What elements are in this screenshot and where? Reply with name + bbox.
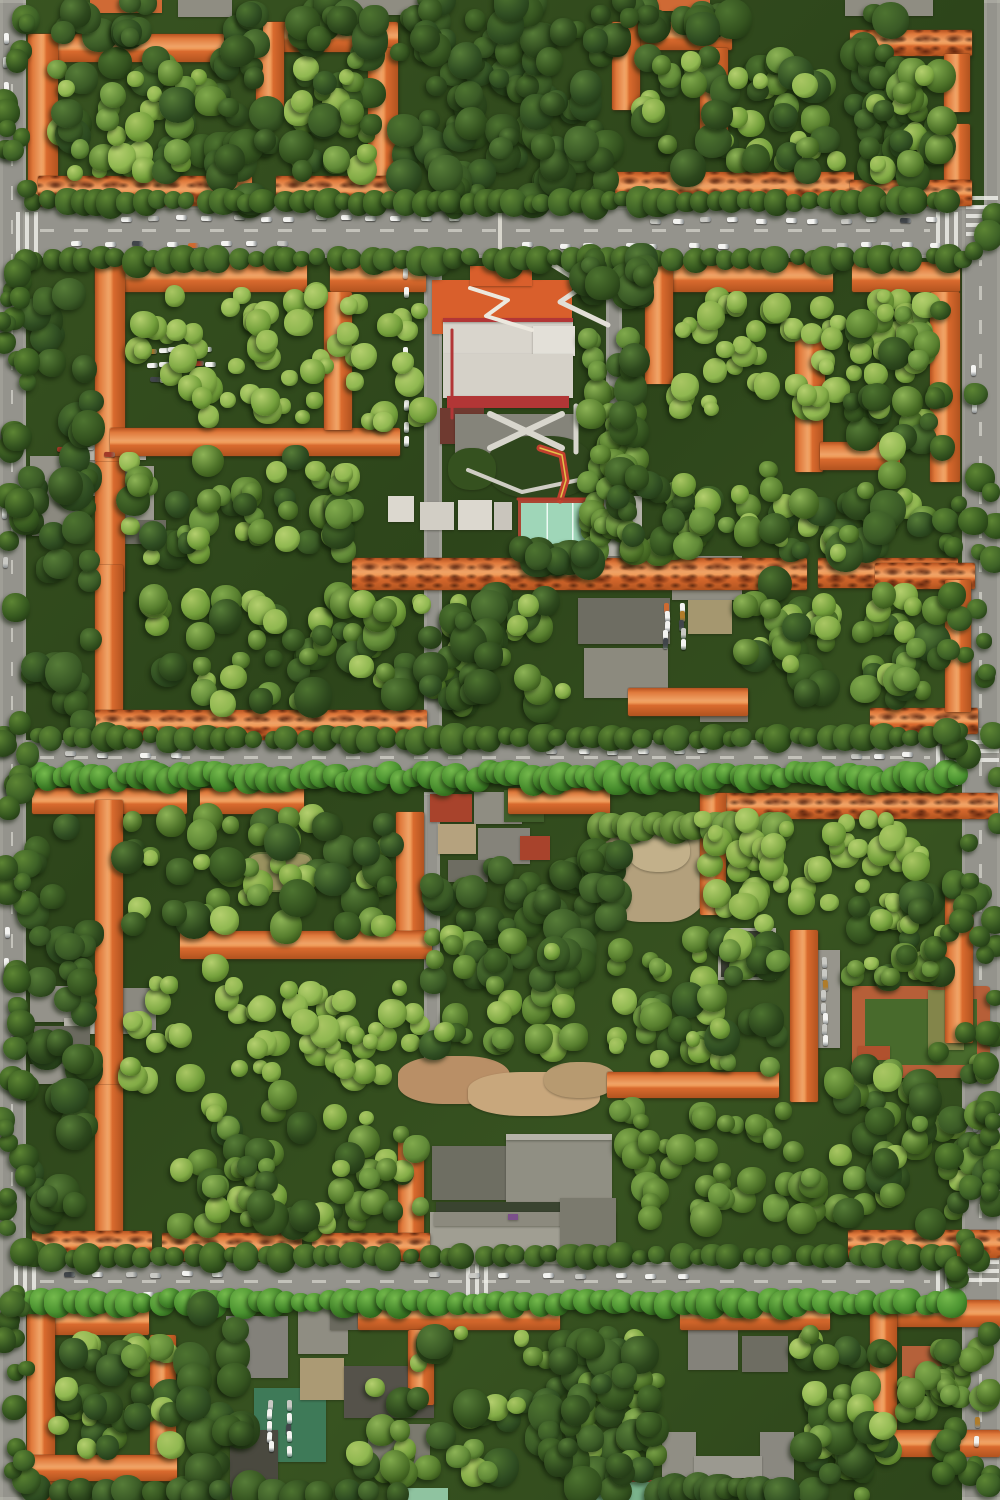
tree bbox=[264, 823, 300, 861]
tree bbox=[464, 669, 501, 704]
car bbox=[261, 217, 272, 222]
car bbox=[974, 1435, 979, 1446]
tree bbox=[872, 2, 909, 39]
tree bbox=[976, 633, 992, 649]
building-or-ground-patch bbox=[458, 500, 492, 530]
tree bbox=[125, 112, 154, 142]
tree bbox=[978, 1322, 1000, 1346]
tree bbox=[37, 1185, 58, 1207]
tree bbox=[231, 1060, 248, 1077]
tree bbox=[819, 1463, 841, 1484]
tree bbox=[612, 988, 637, 1015]
tree bbox=[274, 726, 298, 750]
tree bbox=[760, 477, 783, 502]
tree bbox=[638, 1206, 662, 1230]
tree bbox=[698, 46, 720, 68]
tree bbox=[3, 965, 31, 993]
tree bbox=[339, 69, 354, 85]
tree bbox=[961, 873, 979, 889]
tree bbox=[908, 350, 929, 370]
tree bbox=[729, 893, 759, 920]
tree bbox=[821, 327, 843, 350]
tree bbox=[936, 1429, 961, 1452]
tree bbox=[789, 488, 819, 519]
tree bbox=[847, 960, 865, 977]
street-road bbox=[984, 0, 1000, 208]
car bbox=[718, 244, 729, 249]
tree bbox=[312, 813, 343, 841]
tree bbox=[640, 1002, 672, 1031]
car bbox=[575, 1274, 586, 1279]
tree bbox=[873, 100, 894, 121]
tree bbox=[689, 507, 715, 534]
tree bbox=[824, 1067, 854, 1099]
tree bbox=[249, 189, 276, 213]
tree bbox=[915, 1208, 946, 1240]
tree bbox=[650, 1050, 669, 1068]
tree bbox=[80, 628, 102, 651]
tree bbox=[0, 1291, 25, 1317]
tree bbox=[453, 955, 476, 979]
tree bbox=[550, 18, 577, 46]
tree bbox=[420, 873, 444, 898]
tree bbox=[299, 648, 318, 665]
tree bbox=[591, 5, 611, 24]
tree bbox=[192, 387, 212, 409]
tree bbox=[158, 60, 183, 86]
tree bbox=[346, 1441, 373, 1466]
tree bbox=[210, 690, 236, 717]
tree bbox=[897, 150, 924, 177]
tree bbox=[487, 1001, 512, 1024]
tree bbox=[658, 135, 677, 154]
tree bbox=[165, 285, 185, 307]
tree bbox=[426, 1422, 456, 1449]
tree bbox=[14, 348, 40, 376]
car bbox=[97, 753, 108, 758]
tree bbox=[266, 461, 287, 483]
tree bbox=[478, 1461, 498, 1483]
tree bbox=[363, 1034, 378, 1049]
car bbox=[365, 216, 376, 221]
building-or-ground-patch bbox=[447, 396, 569, 408]
tree bbox=[955, 1022, 976, 1043]
car bbox=[786, 218, 797, 223]
tree bbox=[947, 606, 972, 631]
tree bbox=[412, 1197, 429, 1216]
tree bbox=[456, 875, 487, 908]
tree bbox=[222, 1317, 249, 1343]
tree bbox=[928, 1042, 949, 1062]
tree bbox=[245, 731, 262, 748]
tree bbox=[71, 139, 89, 159]
tree bbox=[775, 1102, 792, 1120]
tree bbox=[583, 28, 608, 53]
tree bbox=[187, 527, 210, 550]
tree bbox=[576, 399, 606, 429]
tree bbox=[63, 1192, 87, 1217]
tree bbox=[305, 1481, 333, 1500]
tree bbox=[597, 875, 625, 902]
tree bbox=[465, 9, 486, 31]
tree bbox=[637, 1385, 662, 1411]
building-or-ground-patch bbox=[430, 794, 472, 822]
tree bbox=[56, 1115, 92, 1150]
tree bbox=[373, 598, 397, 622]
car bbox=[266, 1421, 271, 1432]
tree bbox=[754, 372, 780, 400]
tree bbox=[166, 858, 194, 885]
tree bbox=[404, 1003, 424, 1024]
tree bbox=[373, 813, 395, 836]
tree bbox=[204, 245, 230, 273]
tree bbox=[209, 847, 246, 882]
tree bbox=[564, 126, 599, 161]
tree bbox=[827, 151, 846, 171]
tree bbox=[121, 1344, 147, 1369]
car bbox=[673, 218, 684, 223]
tree bbox=[346, 372, 364, 391]
tree bbox=[169, 344, 197, 373]
tree bbox=[649, 958, 666, 977]
tree bbox=[351, 343, 377, 370]
tree bbox=[377, 313, 403, 337]
car bbox=[971, 365, 976, 376]
car bbox=[926, 217, 937, 222]
tree bbox=[417, 1324, 453, 1359]
car bbox=[140, 753, 151, 758]
car bbox=[429, 1272, 440, 1277]
tree bbox=[848, 839, 868, 858]
building-or-ground-patch bbox=[438, 824, 476, 854]
tree bbox=[686, 1031, 700, 1047]
tree bbox=[783, 1141, 804, 1162]
tree bbox=[612, 1363, 637, 1388]
tree bbox=[632, 729, 652, 748]
tree bbox=[935, 1143, 964, 1170]
tree bbox=[349, 590, 376, 618]
tree bbox=[390, 43, 410, 61]
tree bbox=[446, 1445, 471, 1468]
car bbox=[404, 287, 409, 298]
tree bbox=[220, 392, 236, 408]
tree bbox=[294, 677, 332, 718]
car bbox=[822, 1013, 827, 1024]
tree bbox=[959, 1175, 983, 1200]
tree bbox=[855, 879, 870, 893]
crosswalk bbox=[16, 212, 42, 254]
tree bbox=[157, 1431, 185, 1459]
tree bbox=[222, 816, 239, 834]
tree bbox=[733, 336, 752, 354]
tree bbox=[248, 630, 266, 650]
tree bbox=[55, 933, 85, 960]
car bbox=[269, 1441, 274, 1452]
car bbox=[579, 749, 590, 754]
tree bbox=[578, 328, 598, 349]
tree bbox=[608, 938, 633, 962]
building-or-ground-patch bbox=[494, 502, 512, 530]
tree bbox=[895, 306, 912, 322]
tree bbox=[965, 242, 983, 260]
tree bbox=[570, 70, 602, 105]
car bbox=[421, 216, 432, 221]
tree bbox=[454, 1326, 468, 1340]
car bbox=[104, 452, 115, 457]
tree bbox=[39, 726, 62, 751]
tree bbox=[2, 593, 30, 622]
tree bbox=[418, 626, 442, 649]
tree bbox=[3, 1037, 27, 1060]
car bbox=[201, 216, 212, 221]
tree bbox=[865, 1107, 895, 1135]
tree bbox=[830, 544, 846, 562]
tree bbox=[843, 1166, 867, 1190]
tree bbox=[912, 1116, 928, 1132]
tree bbox=[933, 718, 961, 745]
tree bbox=[896, 945, 917, 965]
tree bbox=[159, 87, 196, 123]
tree bbox=[749, 1003, 784, 1037]
tree bbox=[959, 1347, 983, 1372]
tree bbox=[937, 1288, 967, 1318]
tree bbox=[426, 950, 444, 969]
tree bbox=[197, 489, 221, 513]
tree bbox=[531, 134, 555, 160]
tree bbox=[792, 73, 818, 98]
tree bbox=[263, 609, 287, 634]
tree bbox=[697, 301, 725, 330]
tree bbox=[18, 1361, 35, 1376]
car bbox=[176, 215, 187, 221]
tree bbox=[403, 1135, 430, 1163]
car bbox=[246, 241, 257, 246]
tree bbox=[96, 108, 119, 131]
tree bbox=[247, 1190, 275, 1221]
tree bbox=[976, 1473, 1000, 1497]
building-or-ground-patch bbox=[520, 836, 550, 860]
tree bbox=[571, 540, 599, 567]
tree bbox=[727, 291, 747, 313]
tree bbox=[633, 1114, 649, 1129]
tree bbox=[267, 1243, 296, 1273]
tree bbox=[728, 67, 748, 89]
car bbox=[283, 217, 294, 222]
tree bbox=[815, 616, 841, 640]
tree bbox=[53, 814, 80, 840]
car bbox=[5, 927, 10, 938]
tree bbox=[969, 926, 990, 947]
tree bbox=[47, 60, 67, 79]
tree bbox=[902, 1128, 928, 1154]
tree bbox=[697, 853, 723, 877]
tree bbox=[764, 1477, 800, 1500]
tree bbox=[742, 144, 770, 173]
tree bbox=[279, 879, 317, 917]
tree bbox=[591, 1374, 612, 1394]
tree bbox=[121, 912, 146, 936]
tree bbox=[249, 688, 273, 714]
tree bbox=[349, 655, 374, 678]
tree bbox=[378, 999, 407, 1028]
tree bbox=[278, 501, 298, 520]
tree bbox=[162, 900, 187, 926]
car bbox=[287, 1413, 292, 1424]
building-or-ground-patch bbox=[443, 318, 573, 322]
tree bbox=[925, 134, 953, 164]
tree bbox=[558, 1438, 578, 1457]
tree bbox=[708, 825, 723, 842]
tree bbox=[10, 1238, 38, 1266]
tree bbox=[424, 928, 441, 946]
car bbox=[498, 1273, 509, 1278]
building-or-ground-patch bbox=[533, 326, 575, 356]
tree bbox=[892, 386, 923, 417]
tree bbox=[337, 322, 359, 345]
tree bbox=[609, 1038, 624, 1054]
car bbox=[3, 556, 8, 567]
tree bbox=[282, 629, 305, 651]
car bbox=[286, 1445, 291, 1456]
tree bbox=[377, 727, 397, 748]
tree bbox=[890, 130, 913, 152]
tree bbox=[681, 70, 707, 98]
tree bbox=[215, 144, 245, 174]
tree bbox=[986, 990, 1000, 1006]
tree bbox=[468, 159, 496, 188]
tree bbox=[390, 1420, 410, 1442]
tree bbox=[335, 464, 353, 482]
tree bbox=[96, 1435, 119, 1460]
tree bbox=[507, 1397, 526, 1414]
tree bbox=[484, 948, 508, 973]
tree bbox=[3, 140, 24, 161]
building-or-ground-patch bbox=[178, 0, 232, 17]
tree bbox=[977, 1379, 1000, 1405]
lane-marking bbox=[40, 229, 930, 232]
tree bbox=[492, 1030, 514, 1049]
car bbox=[822, 969, 827, 980]
tree bbox=[165, 1247, 184, 1266]
tree bbox=[766, 950, 790, 972]
tree bbox=[716, 341, 735, 358]
car bbox=[403, 436, 408, 447]
car bbox=[821, 990, 826, 1001]
tree bbox=[788, 888, 815, 915]
tree bbox=[694, 811, 712, 828]
tree bbox=[375, 1243, 401, 1271]
tree bbox=[850, 343, 872, 364]
tree bbox=[413, 596, 431, 614]
tree bbox=[254, 129, 276, 152]
tree bbox=[123, 811, 142, 832]
tree bbox=[673, 532, 703, 560]
car bbox=[266, 1409, 272, 1420]
tree bbox=[407, 1387, 429, 1410]
car bbox=[638, 748, 649, 753]
tree bbox=[802, 1381, 827, 1406]
tree bbox=[857, 482, 874, 499]
tree bbox=[332, 1160, 350, 1177]
car bbox=[150, 1273, 161, 1278]
tree bbox=[879, 432, 906, 462]
tree bbox=[455, 612, 473, 630]
car bbox=[975, 1417, 980, 1428]
tree bbox=[906, 638, 926, 658]
tree bbox=[159, 653, 187, 681]
tree bbox=[670, 149, 706, 187]
car bbox=[900, 218, 911, 223]
tree bbox=[862, 383, 892, 411]
tree bbox=[9, 711, 31, 735]
building-or-ground-patch bbox=[742, 1336, 788, 1372]
tree bbox=[852, 621, 874, 643]
tree bbox=[387, 114, 423, 147]
tree bbox=[8, 1070, 36, 1099]
tree bbox=[794, 157, 821, 184]
car bbox=[866, 217, 877, 222]
tree bbox=[220, 35, 255, 67]
tree bbox=[505, 1245, 525, 1264]
tree bbox=[186, 622, 215, 650]
tree bbox=[915, 65, 934, 86]
tree bbox=[359, 5, 389, 36]
car bbox=[469, 1272, 480, 1277]
tree bbox=[373, 412, 394, 432]
tree bbox=[334, 912, 361, 940]
car bbox=[681, 639, 686, 650]
tree bbox=[474, 642, 503, 670]
tree bbox=[55, 1377, 78, 1401]
tree bbox=[206, 1105, 223, 1122]
tree bbox=[217, 1363, 251, 1397]
tree bbox=[265, 650, 283, 667]
tree bbox=[248, 519, 273, 544]
tree bbox=[410, 25, 440, 53]
tree bbox=[233, 493, 257, 516]
tree bbox=[759, 461, 778, 478]
tree bbox=[846, 365, 862, 381]
tree bbox=[863, 511, 896, 545]
tree bbox=[13, 1450, 35, 1471]
tree bbox=[371, 915, 396, 937]
tree bbox=[365, 1378, 385, 1397]
tree bbox=[932, 508, 959, 533]
tree bbox=[902, 852, 930, 881]
roof-segment bbox=[607, 1072, 779, 1098]
car bbox=[663, 637, 669, 648]
tree bbox=[312, 625, 332, 646]
tree bbox=[2, 1395, 27, 1420]
tree bbox=[899, 187, 928, 214]
tree bbox=[45, 652, 82, 693]
tree bbox=[160, 976, 178, 994]
car bbox=[148, 216, 159, 221]
tree bbox=[759, 513, 790, 544]
tree bbox=[692, 1106, 716, 1130]
tree bbox=[772, 1245, 792, 1265]
tree bbox=[3, 424, 32, 451]
tree bbox=[669, 398, 692, 419]
tree bbox=[958, 507, 988, 535]
tree bbox=[703, 879, 731, 908]
tree bbox=[476, 726, 501, 752]
tree bbox=[221, 298, 240, 317]
tree bbox=[877, 1344, 897, 1364]
tree bbox=[724, 966, 743, 986]
tree bbox=[123, 1012, 143, 1031]
tree bbox=[43, 549, 73, 579]
